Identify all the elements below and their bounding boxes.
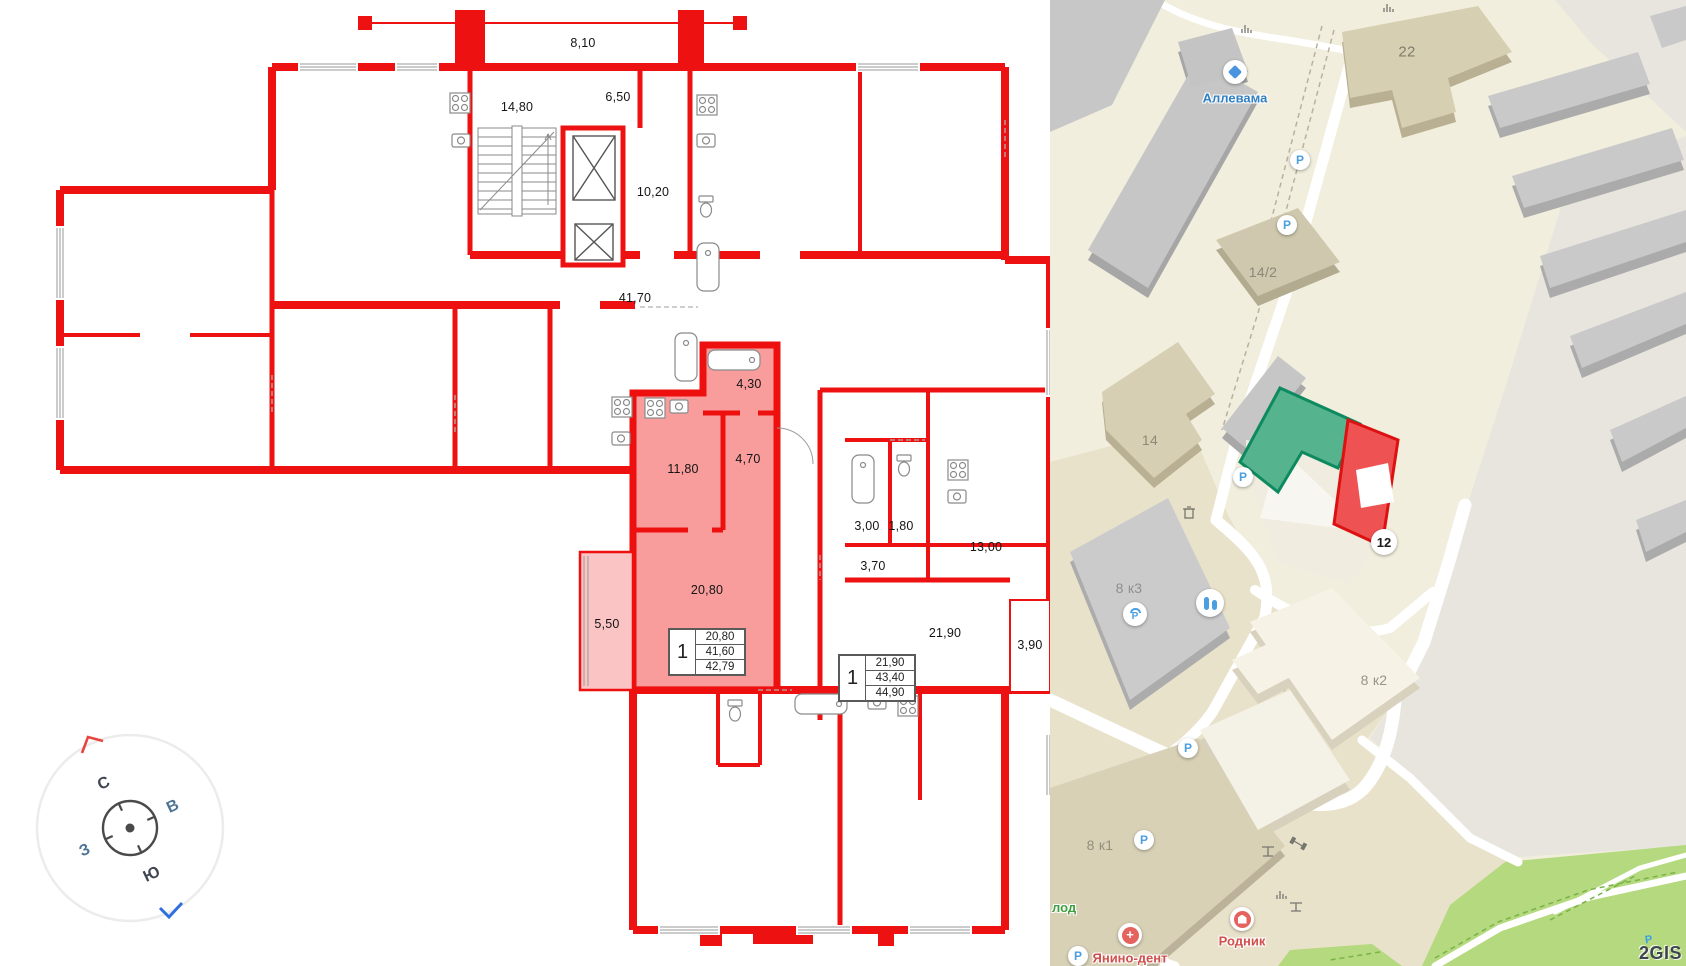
covered-parking-icon[interactable]: P bbox=[1123, 602, 1147, 626]
unit-living-area: 21,90 bbox=[866, 656, 914, 670]
map-canvas[interactable] bbox=[1050, 0, 1686, 966]
rodnik-poi-label[interactable]: Родник bbox=[1219, 934, 1266, 949]
unit-total-area: 44,90 bbox=[866, 685, 914, 700]
allevama-poi-marker[interactable] bbox=[1223, 60, 1247, 84]
unit-area: 43,40 bbox=[866, 670, 914, 685]
unit-rooms-count: 1 bbox=[840, 656, 866, 700]
medical-cross-icon: + bbox=[1122, 927, 1139, 944]
building-label-14: 14 bbox=[1142, 432, 1158, 448]
room-dimension-label: 8,10 bbox=[570, 36, 595, 50]
building-label-22: 22 bbox=[1398, 44, 1415, 61]
unit-info-table: 1 20,80 41,60 42,79 bbox=[668, 628, 746, 676]
building-label-8k2: 8 к2 bbox=[1361, 672, 1388, 688]
room-dimension-label: 10,20 bbox=[637, 185, 669, 199]
unit-living-area: 20,80 bbox=[696, 630, 744, 644]
room-dimension-label: 5,50 bbox=[594, 617, 619, 631]
yanino-dent-poi-label[interactable]: Янино-дент bbox=[1092, 951, 1167, 966]
room-dimension-label: 3,00 bbox=[854, 519, 879, 533]
allevama-poi-label[interactable]: Аллевама bbox=[1203, 91, 1268, 106]
room-dimension-label: 3,70 bbox=[860, 559, 885, 573]
room-dimension-label: 11,80 bbox=[667, 462, 698, 476]
map-panel[interactable]: Аллевама P P P P P P P 12 + Янино-дент Р… bbox=[1050, 0, 1686, 966]
floor-plan-drawing bbox=[0, 0, 1050, 966]
parking-icon[interactable]: P bbox=[1233, 467, 1253, 487]
room-dimension-label: 41,70 bbox=[619, 291, 651, 305]
unit-info-table: 1 21,90 43,40 44,90 bbox=[838, 654, 916, 702]
diamond-icon bbox=[1228, 65, 1242, 79]
apartment-location-cutout bbox=[1356, 463, 1394, 508]
rodnik-poi-marker[interactable] bbox=[1230, 907, 1254, 931]
parking-icon[interactable]: P bbox=[1277, 215, 1297, 235]
parking-icon[interactable]: P bbox=[1068, 946, 1088, 966]
room-dimension-label: 13,00 bbox=[970, 540, 1002, 554]
compass-rose bbox=[37, 735, 223, 921]
shop-icon bbox=[1234, 911, 1251, 928]
room-dimension-label: 21,90 bbox=[929, 626, 961, 640]
room-dimension-label: 20,80 bbox=[691, 583, 723, 597]
thermometer-icon bbox=[1204, 597, 1217, 610]
building-label-8k3: 8 к3 bbox=[1116, 580, 1143, 596]
room-dimension-label: 1,80 bbox=[888, 519, 913, 533]
room-dimension-label: 4,30 bbox=[736, 377, 761, 391]
parking-icon[interactable]: P bbox=[1178, 738, 1198, 758]
building-label-8k1: 8 к1 bbox=[1087, 837, 1114, 853]
room-dimension-label: 6,50 bbox=[605, 90, 630, 104]
room-dimension-label: 3,90 bbox=[1017, 638, 1042, 652]
listing-screen: 8,10 14,80 6,50 10,20 41,70 4,30 4,70 11… bbox=[0, 0, 1686, 966]
unit-rooms-count: 1 bbox=[670, 630, 696, 674]
parking-icon[interactable]: P bbox=[1290, 150, 1310, 170]
room-dimension-label: 14,80 bbox=[501, 100, 533, 114]
floorplan-panel: 8,10 14,80 6,50 10,20 41,70 4,30 4,70 11… bbox=[0, 0, 1050, 966]
building-label-14-2: 14/2 bbox=[1249, 264, 1277, 280]
room-dimension-label: 4,70 bbox=[735, 452, 760, 466]
clipped-poi-label: лод bbox=[1052, 900, 1076, 915]
amenity-icon[interactable] bbox=[1196, 589, 1224, 617]
yanino-dent-poi-marker[interactable]: + bbox=[1118, 923, 1142, 947]
2gis-logo[interactable]: 2GIS bbox=[1639, 943, 1682, 964]
parking-icon[interactable]: P bbox=[1134, 830, 1154, 850]
unit-total-area: 42,79 bbox=[696, 659, 744, 674]
building-number-badge[interactable]: 12 bbox=[1371, 529, 1397, 555]
unit-area: 41,60 bbox=[696, 644, 744, 659]
